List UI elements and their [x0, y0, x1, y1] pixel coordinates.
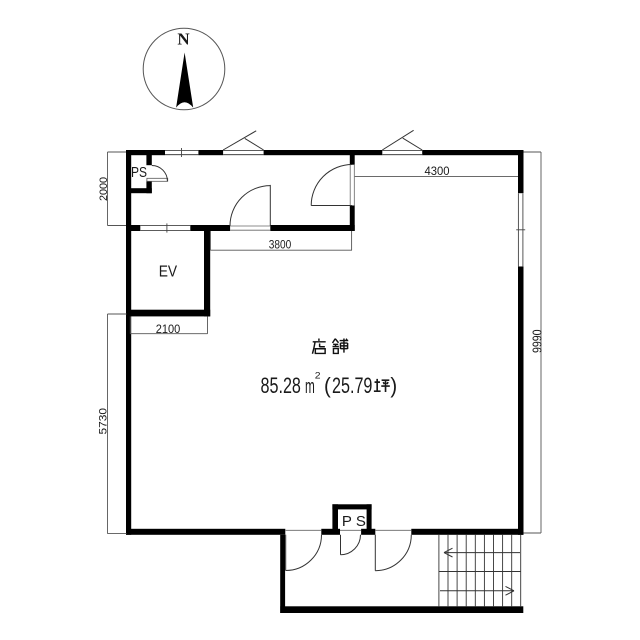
svg-text:PS: PS — [131, 165, 147, 181]
svg-text:25.79: 25.79 — [332, 373, 372, 398]
svg-text:85.28: 85.28 — [261, 373, 301, 398]
svg-text:2: 2 — [315, 371, 321, 382]
svg-text:EV: EV — [159, 264, 178, 281]
svg-text:2100: 2100 — [156, 322, 181, 336]
svg-text:3800: 3800 — [269, 237, 292, 251]
svg-text:9990: 9990 — [530, 329, 545, 353]
svg-text:2000: 2000 — [98, 177, 110, 201]
svg-text:N: N — [177, 30, 190, 49]
svg-text:5730: 5730 — [98, 408, 110, 435]
svg-text:m: m — [305, 376, 315, 398]
svg-text:4300: 4300 — [425, 164, 450, 178]
svg-text:): ) — [390, 373, 397, 398]
svg-text:(: ( — [324, 373, 331, 398]
